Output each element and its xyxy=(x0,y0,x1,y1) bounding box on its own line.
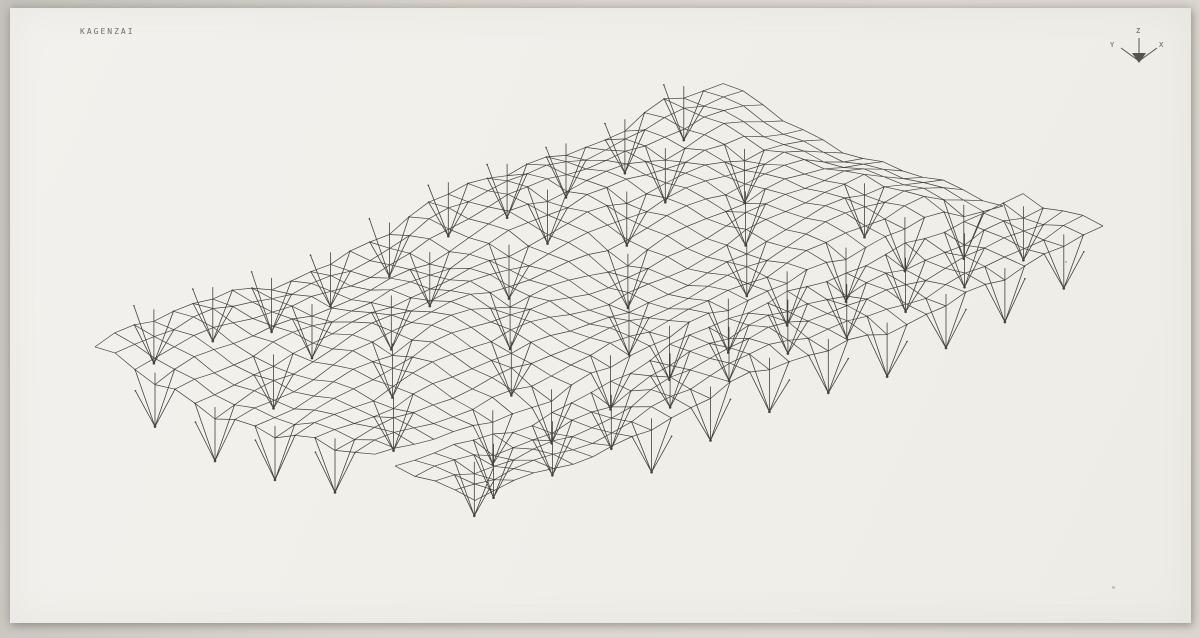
axis-label-z: Z xyxy=(1136,27,1140,35)
plot-title: KAGENZAI xyxy=(80,27,135,36)
axis-label-x: X xyxy=(1159,41,1163,49)
paper-sheet xyxy=(10,8,1191,623)
paper-speck xyxy=(1112,586,1115,589)
photo-backdrop: KAGENZAI Z Y X xyxy=(0,0,1200,638)
paper-speck xyxy=(1065,261,1067,263)
axis-label-y: Y xyxy=(1110,41,1114,49)
